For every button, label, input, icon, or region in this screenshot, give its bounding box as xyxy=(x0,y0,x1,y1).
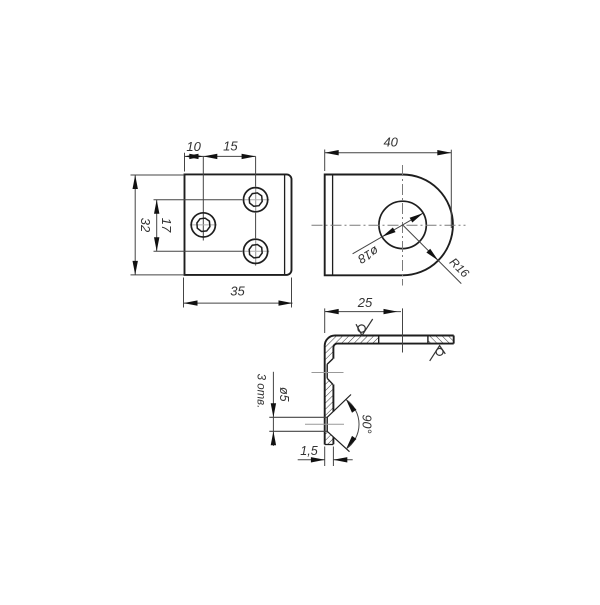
svg-text:10: 10 xyxy=(186,139,201,154)
svg-text:35: 35 xyxy=(230,284,245,299)
svg-text:25: 25 xyxy=(357,295,373,310)
svg-text:ø5: ø5 xyxy=(277,387,291,402)
svg-text:32: 32 xyxy=(138,218,153,233)
svg-text:3 отв.: 3 отв. xyxy=(255,374,267,409)
svg-text:1,5: 1,5 xyxy=(300,444,317,458)
svg-text:40: 40 xyxy=(383,134,398,149)
svg-text:90°: 90° xyxy=(359,415,373,434)
svg-text:15: 15 xyxy=(223,139,238,154)
svg-text:17: 17 xyxy=(159,218,174,233)
